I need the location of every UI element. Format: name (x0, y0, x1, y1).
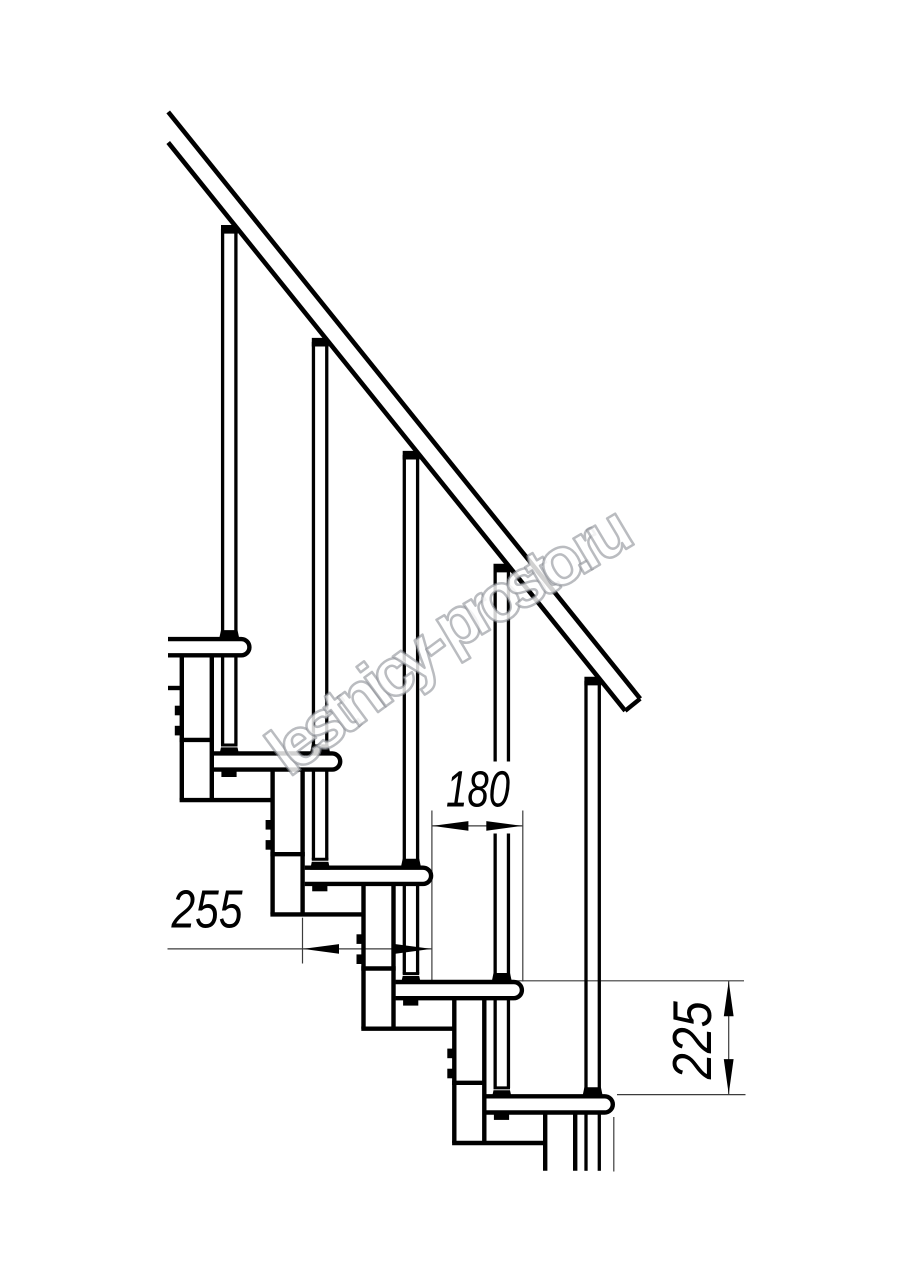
svg-text:180: 180 (446, 761, 510, 818)
svg-text:255: 255 (171, 880, 244, 940)
svg-text:prosto.ru: prosto.ru (420, 490, 645, 666)
svg-text:225: 225 (661, 1001, 723, 1080)
svg-text:lestnicy-: lestnicy- (253, 606, 465, 790)
